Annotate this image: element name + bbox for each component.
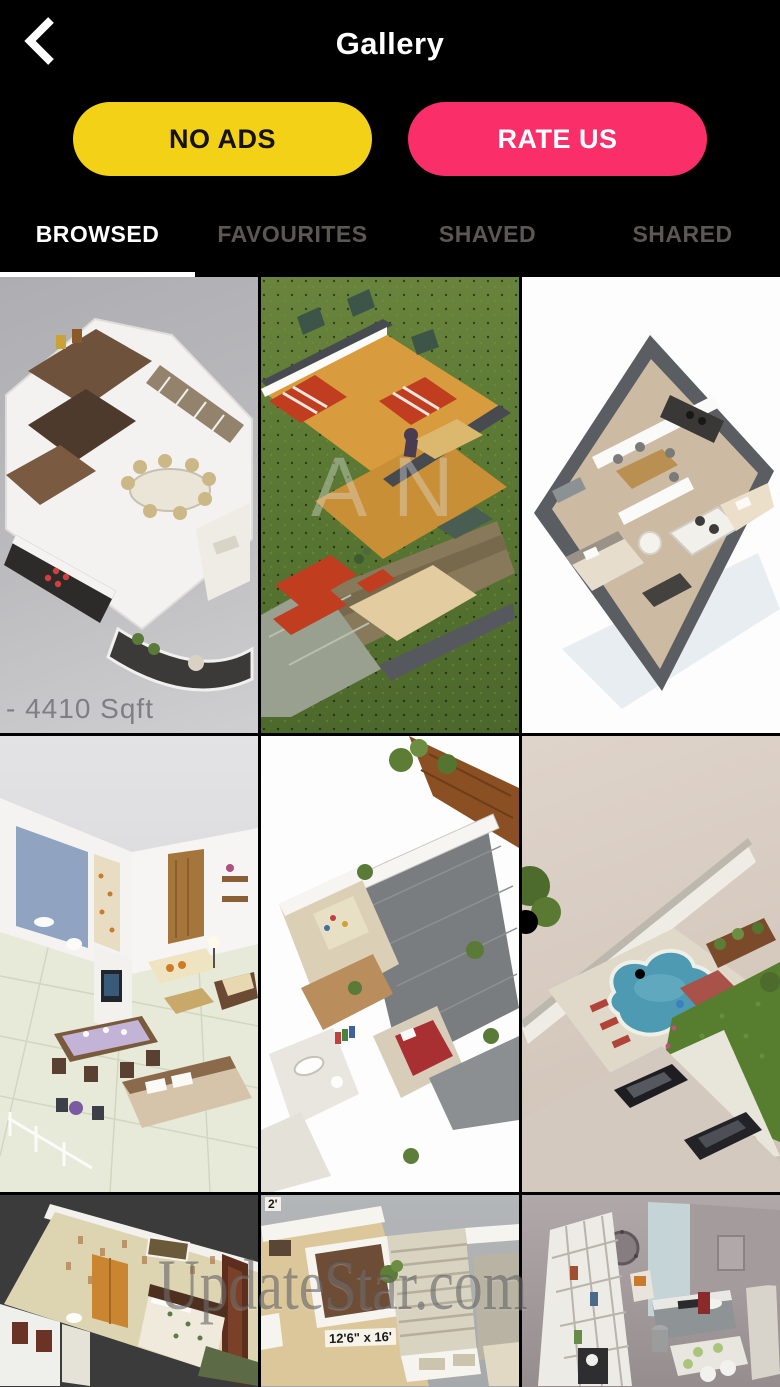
dimension-label-corner: 2' xyxy=(265,1197,281,1211)
gallery-thumbnail-8[interactable]: 2' 12'6" x 16' xyxy=(261,1195,519,1387)
rate-us-button[interactable]: RATE US xyxy=(408,102,707,176)
gallery-thumbnail-7[interactable] xyxy=(0,1195,258,1387)
no-ads-button[interactable]: NO ADS xyxy=(73,102,372,176)
gallery-thumbnail-3[interactable] xyxy=(522,277,780,733)
gallery-thumbnail-4[interactable] xyxy=(0,736,258,1192)
floor-plan-art xyxy=(261,736,519,1192)
tab-browsed[interactable]: BROWSED xyxy=(0,208,195,277)
gallery-thumbnail-2[interactable]: AN xyxy=(261,277,519,733)
tab-label: BROWSED xyxy=(36,221,160,248)
tab-shaved[interactable]: SHAVED xyxy=(390,208,585,277)
gallery-thumbnail-6[interactable] xyxy=(522,736,780,1192)
tab-label: FAVOURITES xyxy=(217,221,367,248)
floor-plan-art xyxy=(522,1195,780,1387)
tab-label: SHAVED xyxy=(439,221,536,248)
header: Gallery xyxy=(0,0,780,88)
gallery-thumbnail-9[interactable] xyxy=(522,1195,780,1387)
tab-bar: BROWSED FAVOURITES SHAVED SHARED xyxy=(0,208,780,277)
tab-favourites[interactable]: FAVOURITES xyxy=(195,208,390,277)
floor-plan-art xyxy=(261,1195,519,1387)
floor-plan-art xyxy=(261,277,519,733)
sqft-caption: - 4410 Sqft xyxy=(6,693,154,725)
floor-plan-art xyxy=(0,277,258,733)
floor-plan-art xyxy=(522,736,780,1192)
floor-plan-art xyxy=(0,1195,258,1387)
tab-shared[interactable]: SHARED xyxy=(585,208,780,277)
floor-plan-art xyxy=(0,736,258,1192)
page-title: Gallery xyxy=(0,0,780,88)
action-buttons-row: NO ADS RATE US xyxy=(0,102,780,176)
gallery-thumbnail-1[interactable]: - 4410 Sqft xyxy=(0,277,258,733)
tab-label: SHARED xyxy=(632,221,732,248)
gallery-thumbnail-5[interactable] xyxy=(261,736,519,1192)
gallery-grid: - 4410 Sqft xyxy=(0,277,780,1387)
floor-plan-art xyxy=(522,277,780,733)
dimension-label-size: 12'6" x 16' xyxy=(325,1328,397,1347)
